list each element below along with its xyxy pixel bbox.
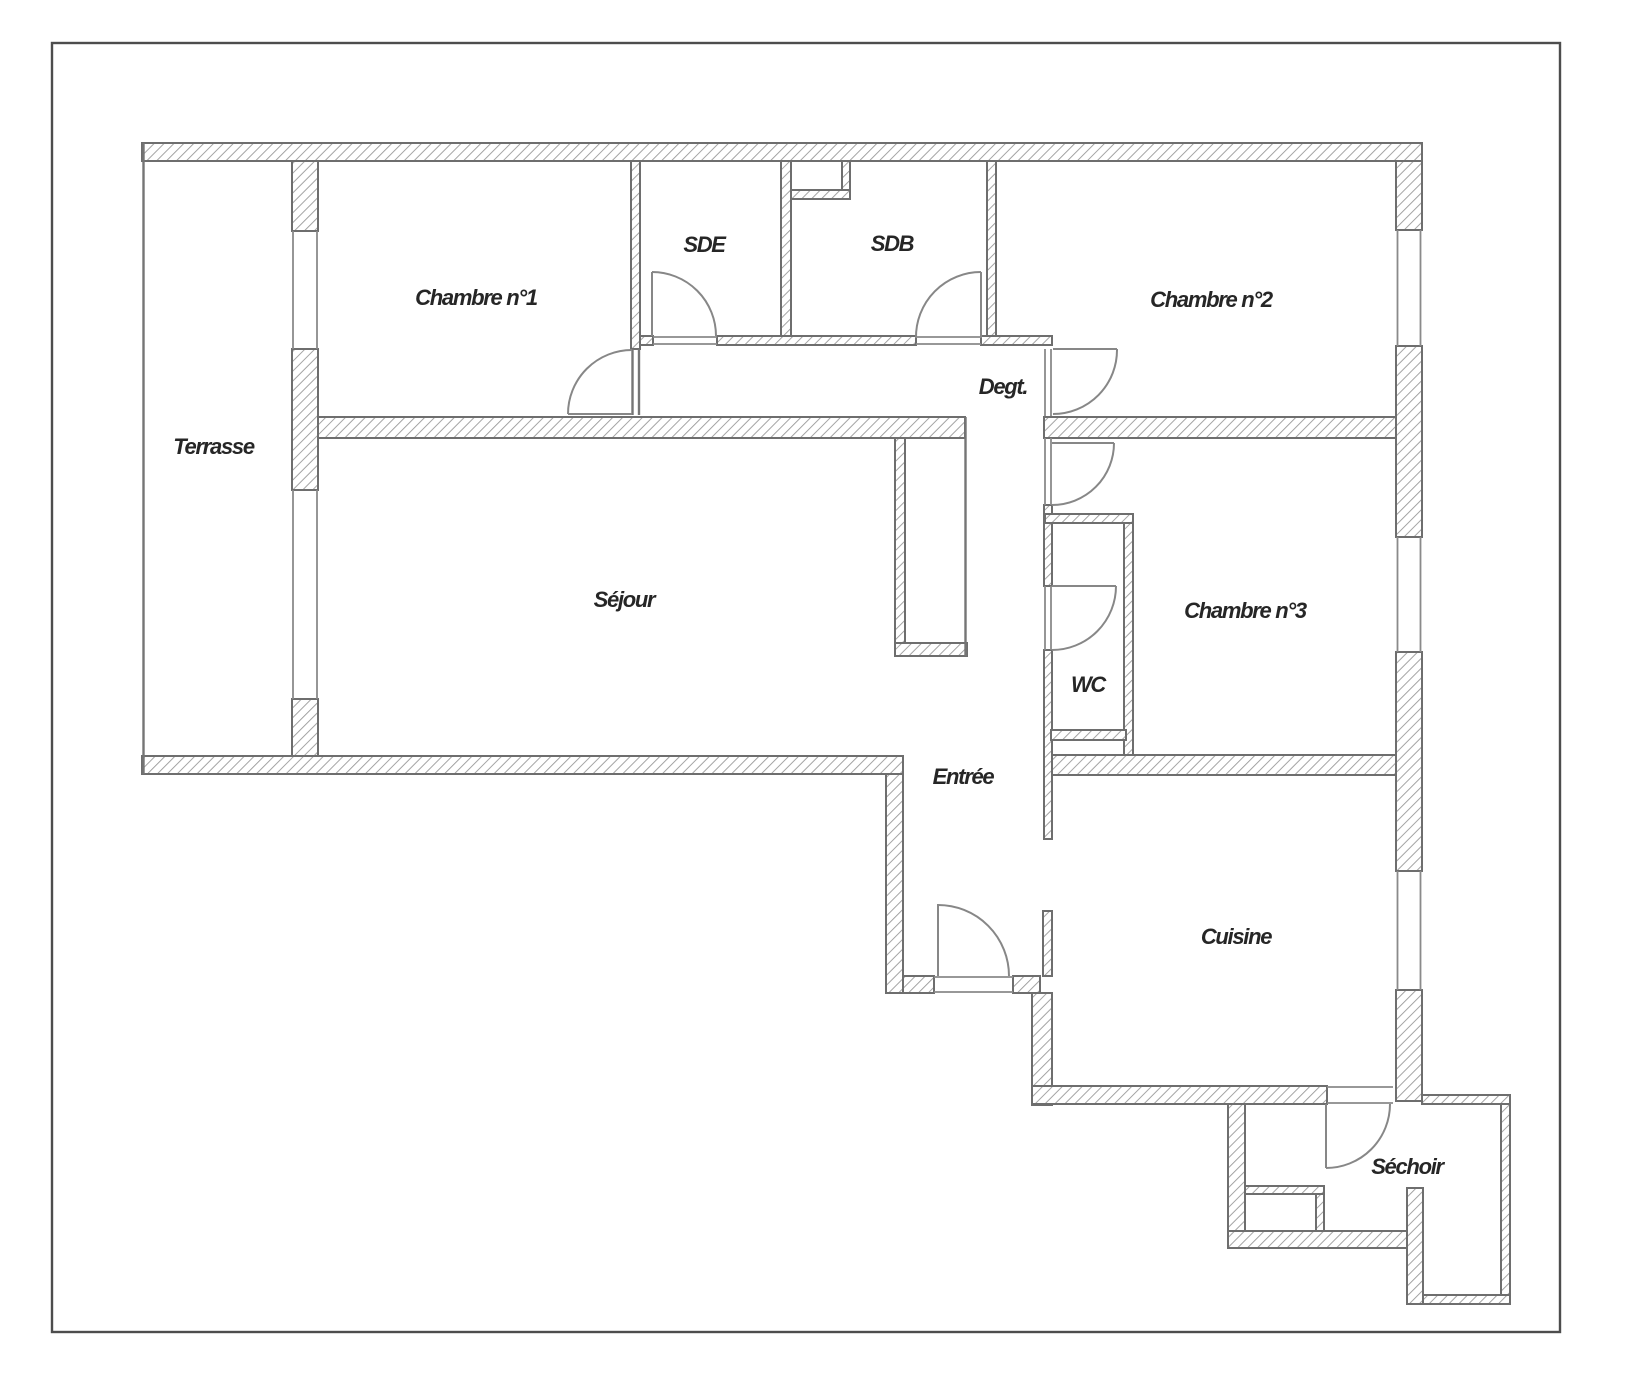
svg-text:WC: WC xyxy=(1071,672,1107,697)
svg-text:SDB: SDB xyxy=(871,231,915,256)
svg-text:Chambre n°2: Chambre n°2 xyxy=(1150,287,1274,312)
svg-text:Degt.: Degt. xyxy=(979,374,1028,399)
svg-text:Séchoir: Séchoir xyxy=(1371,1154,1445,1179)
svg-text:Cuisine: Cuisine xyxy=(1201,924,1272,949)
svg-text:Terrasse: Terrasse xyxy=(173,434,255,459)
svg-text:SDE: SDE xyxy=(683,232,727,257)
svg-text:Chambre n°3: Chambre n°3 xyxy=(1184,598,1307,623)
svg-text:Séjour: Séjour xyxy=(594,587,657,612)
svg-text:Entrée: Entrée xyxy=(933,764,995,789)
svg-text:Chambre n°1: Chambre n°1 xyxy=(415,285,538,310)
